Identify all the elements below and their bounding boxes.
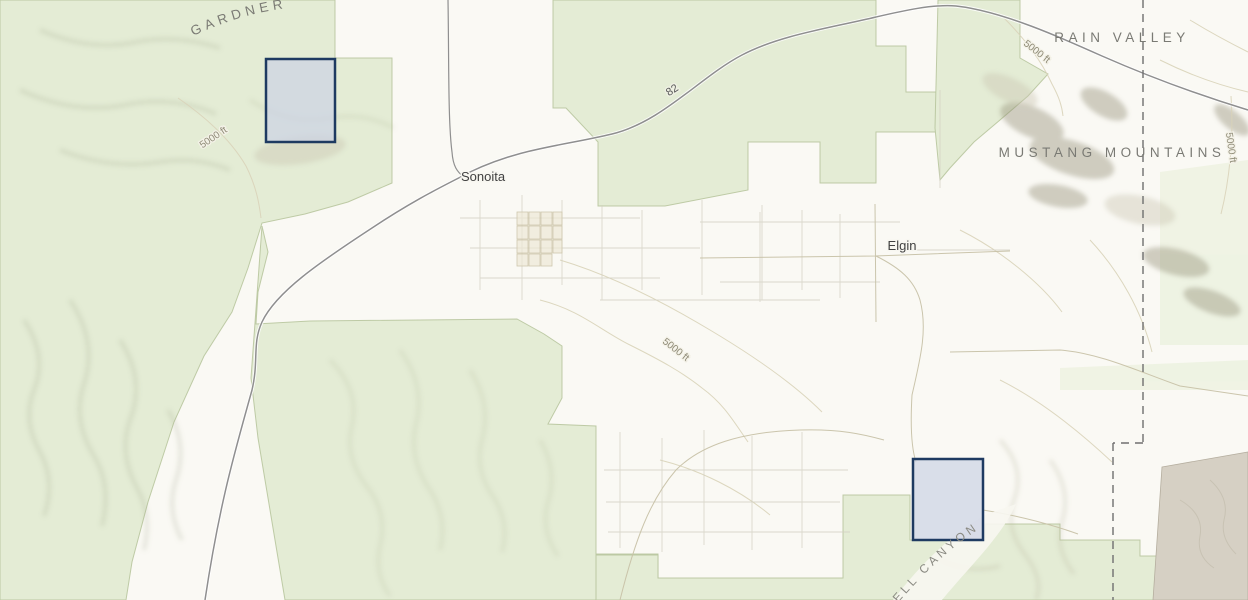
sonoita-label: Sonoita [461, 169, 506, 184]
map-canvas[interactable]: GARDNER RAIN VALLEY MUSTANG MOUNTAINS So… [0, 0, 1248, 600]
map-viewport: GARDNER RAIN VALLEY MUSTANG MOUNTAINS So… [0, 0, 1248, 600]
elgin-label: Elgin [888, 238, 917, 253]
parcel-highlight-1[interactable] [266, 59, 335, 142]
rain-valley-label: RAIN VALLEY [1054, 30, 1190, 45]
mustang-mountains-label: MUSTANG MOUNTAINS [999, 145, 1226, 160]
